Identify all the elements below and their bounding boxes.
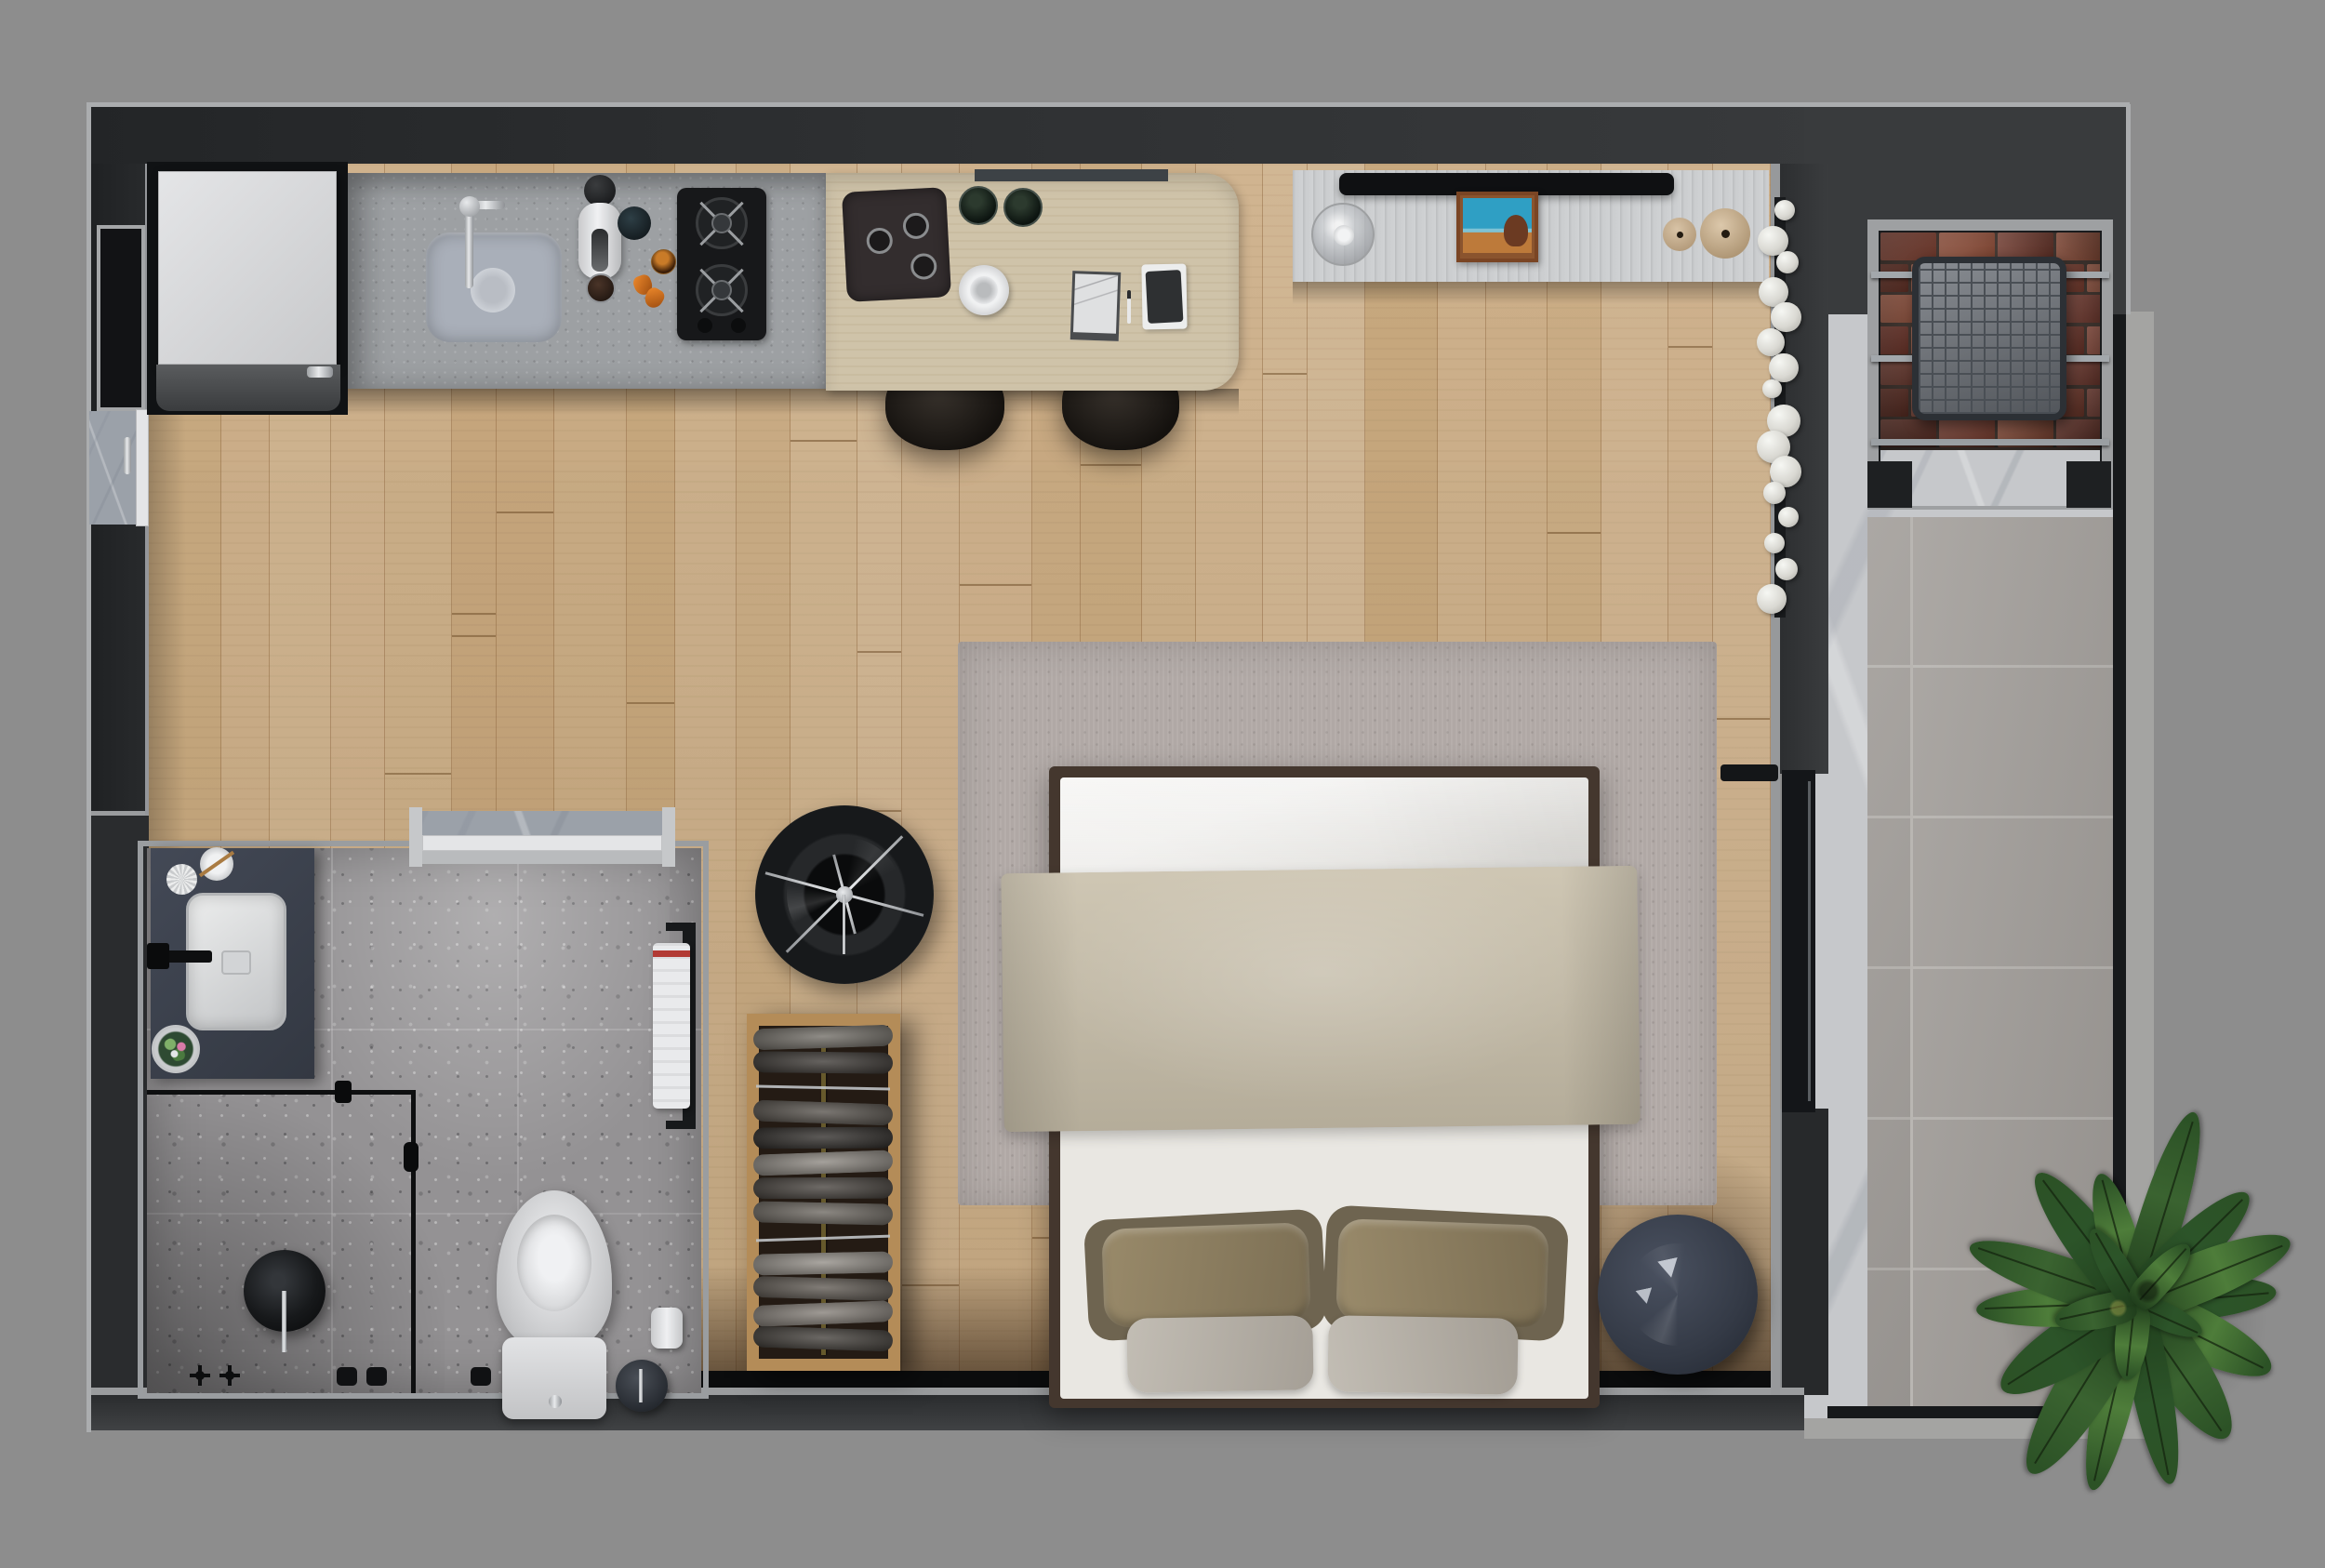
serving-tray: [842, 187, 951, 302]
framed-artwork: [1456, 192, 1538, 262]
pillow-gray-1: [1126, 1315, 1313, 1392]
vase-small: [1663, 218, 1696, 251]
plant-crown-moss: [2092, 1261, 2178, 1347]
shower-cross-tap-2: [219, 1365, 240, 1386]
sliding-door-handle: [1720, 764, 1778, 781]
cooktop-knob-1: [697, 318, 712, 333]
coffee-machine-chute: [591, 229, 608, 272]
shower-knob-2: [366, 1367, 387, 1386]
pillow-olive-2: [1335, 1218, 1549, 1328]
hanging-garment: [753, 1177, 893, 1200]
hanging-garment: [753, 1149, 894, 1176]
vase-large: [1700, 208, 1750, 259]
bath-door-post-right: [662, 807, 675, 867]
artwork-canvas: [1463, 198, 1532, 253]
hanging-garment: [753, 1201, 893, 1225]
grill-grate: [1912, 257, 2066, 420]
hanging-garment: [753, 1025, 894, 1051]
plank-joint: [1081, 464, 1141, 466]
shower-knob-1: [337, 1367, 357, 1386]
round-lounge-chair: [1598, 1215, 1758, 1375]
grill-side-block-left: [1867, 461, 1912, 508]
sink-drain: [471, 268, 515, 312]
kitchen-faucet-arm: [465, 206, 473, 288]
grill-side-block-right: [2066, 461, 2111, 508]
sink-drain-square: [221, 950, 251, 975]
espresso-cup-amber: [651, 249, 676, 274]
entrance-door: [136, 409, 149, 526]
bathroom-corner-shadow: [147, 1097, 445, 1393]
plant-bowl: [152, 1025, 200, 1073]
outer-edge-left: [86, 102, 91, 1432]
vase-mouth: [1677, 232, 1683, 238]
sliding-door-frame: [1782, 770, 1815, 1112]
glass-bowl: [1311, 203, 1375, 266]
candle: [1334, 225, 1354, 246]
hanging-garment: [753, 1100, 894, 1126]
bin-handle: [639, 1369, 643, 1402]
pedestal-fan: [755, 805, 934, 984]
shower-cross-tap-1: [190, 1365, 210, 1386]
dark-bowl-1: [959, 186, 998, 225]
plant-bowl-leaves: [162, 1037, 190, 1061]
curtain-fold: [1762, 379, 1781, 398]
shower-glass-connector: [335, 1081, 352, 1103]
vase-mouth: [1721, 230, 1730, 238]
sketchpad: [1070, 271, 1122, 341]
faucet-base-block: [147, 943, 169, 969]
curtain-fold: [1764, 533, 1785, 553]
fan-pole: [843, 895, 845, 954]
plank-joint: [1713, 718, 1770, 720]
floor-shadow-under-console: [1293, 282, 1769, 304]
curtain-fold: [1757, 328, 1785, 356]
curtain-fold: [1769, 353, 1798, 382]
bed-blanket: [1001, 866, 1640, 1132]
balcony-tile-grout-line: [1910, 517, 1913, 1408]
waste-bin: [616, 1360, 668, 1412]
refrigerator: [158, 171, 337, 365]
cooktop-burner-2: [696, 264, 748, 316]
bathroom-pocket-door: [422, 835, 662, 851]
refrigerator-handle: [307, 366, 333, 378]
plank-joint: [960, 584, 1031, 586]
curtain-fold: [1763, 482, 1786, 504]
pen: [1127, 290, 1131, 324]
curtain-fold: [1778, 507, 1799, 527]
door-glass-line: [1808, 781, 1811, 1101]
bath-door-lintel-marble: [422, 811, 662, 835]
entry-handle-inner: [124, 437, 131, 474]
hanging-garment: [753, 1127, 893, 1149]
island-wall-ledge: [975, 169, 1168, 181]
shower-valve-handle: [404, 1142, 418, 1172]
pillow-olive-1: [1101, 1222, 1311, 1328]
balcony-tile-column-narrow: [1867, 517, 1910, 1408]
outer-edge-grill-right: [2126, 104, 2131, 314]
open-wardrobe: [747, 1014, 900, 1371]
curtain-fold: [1771, 302, 1800, 332]
hanging-garment: [753, 1051, 893, 1074]
plank-joint: [857, 651, 901, 653]
toilet-flush-button: [549, 1395, 562, 1408]
hanging-garment: [753, 1326, 894, 1352]
plank-joint: [627, 702, 674, 704]
notebook-dark: [1146, 270, 1184, 324]
shower-knob-3: [471, 1367, 491, 1386]
soap-dish-1: [200, 847, 233, 881]
bath-door-post-left: [409, 807, 422, 867]
cooktop-knob-2: [731, 318, 746, 333]
glass-2: [902, 212, 929, 239]
coffee-grinder-bowl: [618, 206, 651, 240]
artwork-figure: [1504, 215, 1528, 246]
outer-edge-top: [88, 102, 2130, 107]
wood-stick: [199, 851, 234, 878]
hanging-garment: [753, 1251, 893, 1275]
bath-door-sill: [422, 851, 662, 864]
coffee-machine-cup: [586, 273, 616, 303]
coffee-cup: [970, 276, 998, 304]
toilet-paper: [651, 1308, 683, 1349]
plank-joint: [1548, 532, 1601, 534]
hanging-garment: [753, 1300, 894, 1327]
burner-cap: [711, 280, 732, 300]
plank-joint: [497, 512, 553, 513]
glass-1: [866, 227, 893, 254]
wall-right-lower: [1778, 1109, 1828, 1395]
plank-joint: [790, 440, 857, 442]
entry-wall-niche: [97, 225, 145, 411]
hanging-garment: [753, 1276, 894, 1301]
toilet-bowl-inner: [517, 1215, 591, 1311]
pillow-gray-2: [1327, 1315, 1518, 1395]
cooktop-burner-1: [696, 197, 748, 249]
dark-bowl-2: [1003, 188, 1043, 227]
shower-glass-horizontal: [147, 1090, 415, 1095]
towel-rail-arm-top: [666, 923, 696, 931]
soap-dish-2: [166, 864, 197, 895]
shower-head-pipe: [282, 1291, 286, 1352]
kitchen-faucet-base: [459, 196, 480, 217]
glass-3: [910, 253, 937, 280]
grill-rail-3: [1871, 439, 2109, 445]
floorplan-scene: [0, 0, 2325, 1568]
towel-rail-arm-bottom: [666, 1121, 696, 1129]
plank-joint: [452, 613, 496, 615]
towel-red-stripe: [653, 950, 690, 957]
curtain-fold: [1774, 200, 1795, 220]
burner-cap: [711, 213, 732, 233]
plank-joint: [452, 635, 496, 637]
white-towel: [653, 943, 690, 1109]
curtain-fold: [1776, 251, 1799, 273]
plank-joint: [385, 773, 451, 775]
shower-glass-vertical: [411, 1090, 416, 1393]
plank-joint: [1263, 373, 1307, 375]
coffee-machine-tank: [584, 175, 616, 206]
plank-joint: [1668, 346, 1712, 348]
